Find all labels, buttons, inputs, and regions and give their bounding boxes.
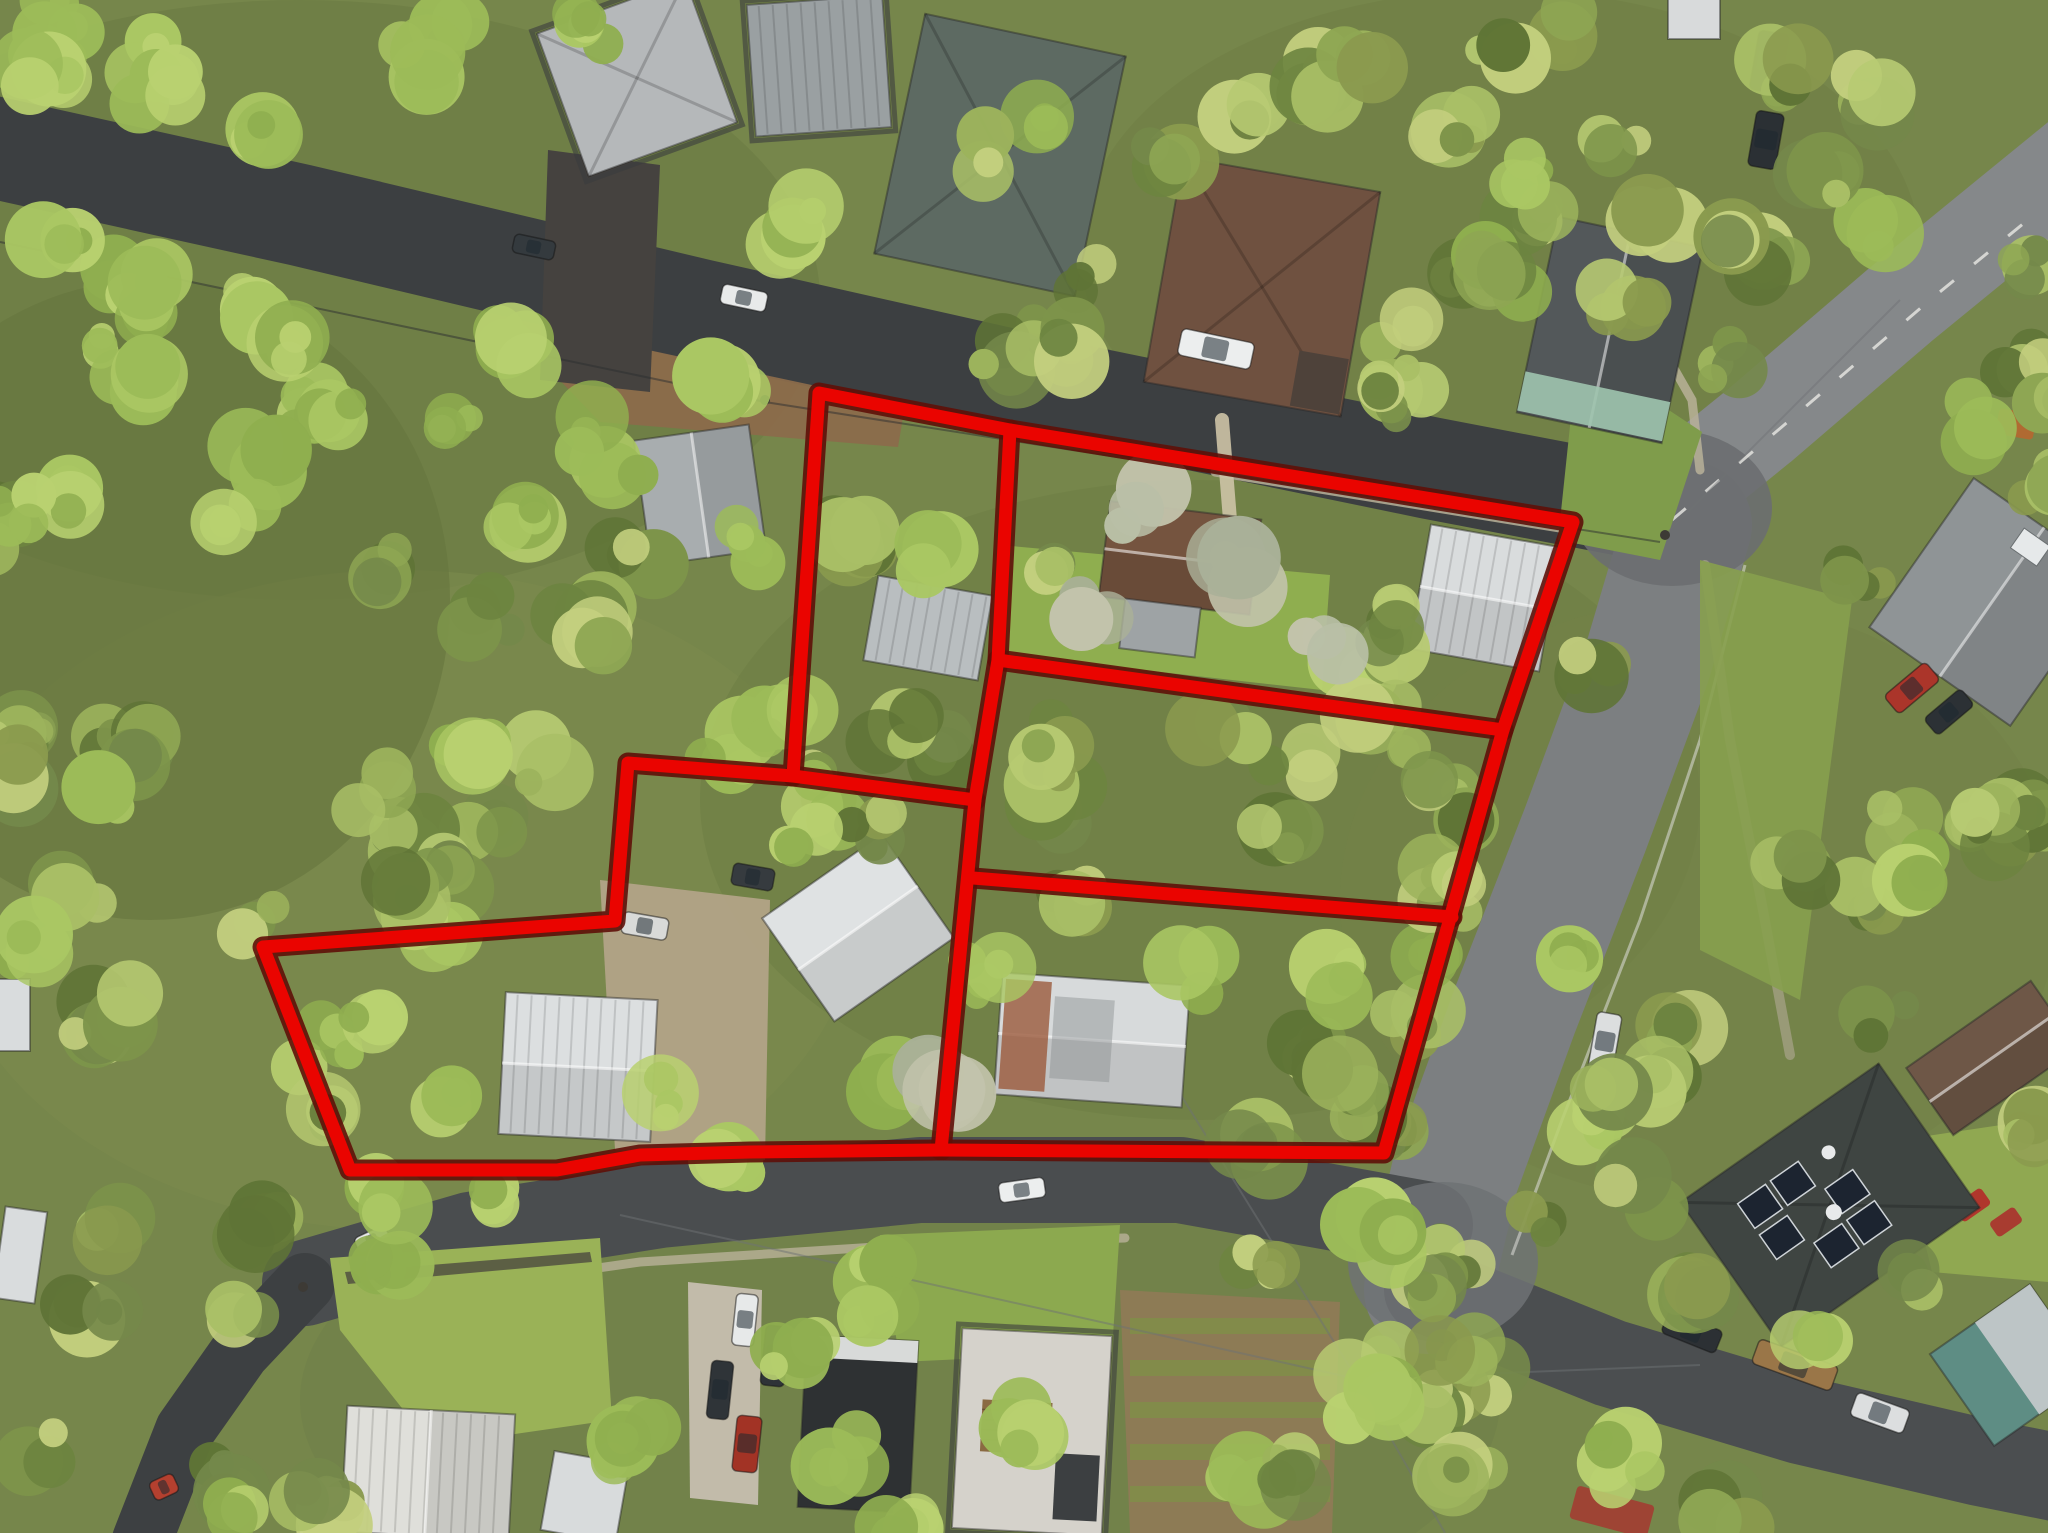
white-roof-left-edge	[0, 979, 30, 1051]
aerial-scene-svg	[0, 0, 2048, 1533]
small-white-building-top	[1668, 0, 1720, 39]
utility-pole	[1660, 530, 1670, 540]
utility-pole	[298, 1282, 308, 1292]
red-car-driveway	[732, 1415, 763, 1473]
terrace-row	[1130, 1402, 1330, 1418]
seam-roof-house-top	[742, 0, 895, 141]
aerial-photo	[0, 0, 2048, 1533]
terrace-row	[1130, 1360, 1330, 1376]
terrace-row	[1130, 1318, 1330, 1334]
